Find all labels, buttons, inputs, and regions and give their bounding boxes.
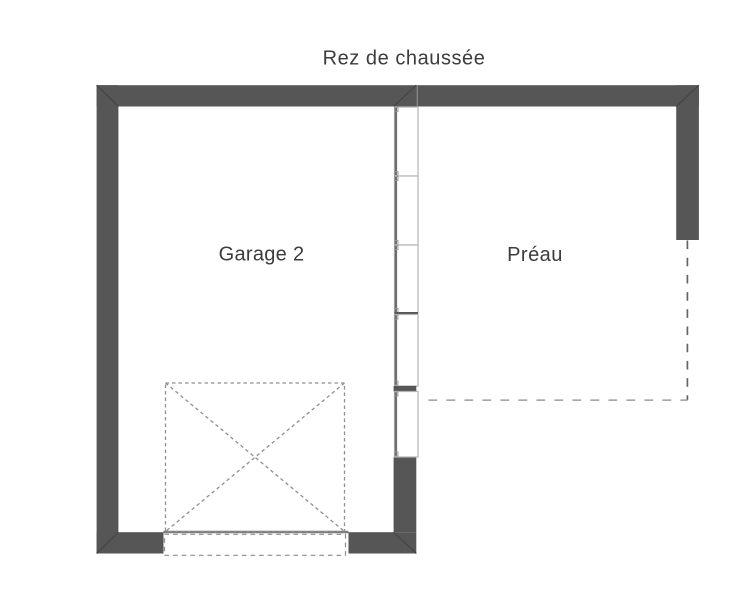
svg-text:Rez de chaussée: Rez de chaussée [323,48,486,70]
svg-text:Garage 2: Garage 2 [219,244,305,266]
svg-text:Préau: Préau [507,244,563,266]
